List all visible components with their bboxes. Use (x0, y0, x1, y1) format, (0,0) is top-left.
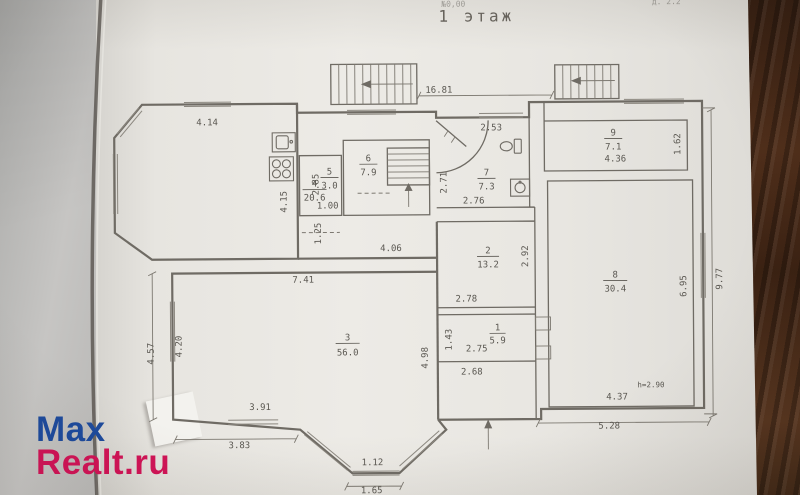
floor-plan-photo: 1 этаж №0,00 д. 2.2 4 20.6 5 3.0 6 7.9 7 (0, 0, 800, 495)
watermark-realt: Realt.ru (36, 447, 170, 480)
maxrealt-watermark: Max Realt.ru (36, 414, 170, 480)
watermark-max: Max (36, 414, 170, 447)
